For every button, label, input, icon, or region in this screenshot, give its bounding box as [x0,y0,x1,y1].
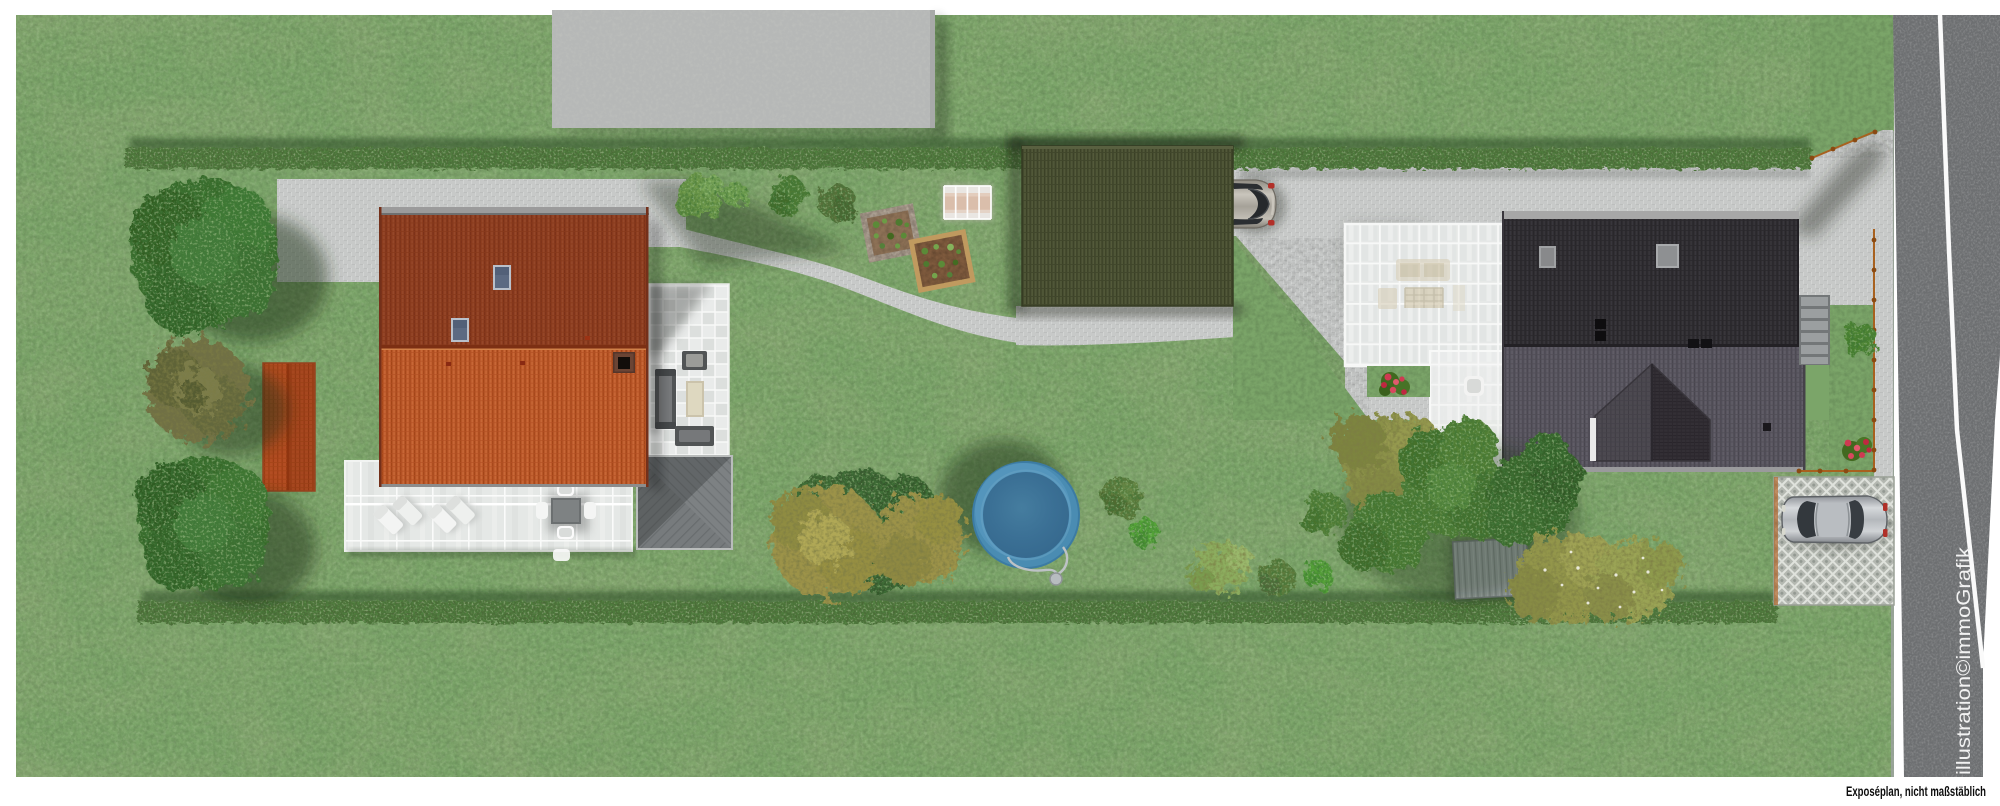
svg-text:Exposéplan, nicht maßstäblich: Exposéplan, nicht maßstäblich [1846,784,1986,799]
svg-text:illustration©immoGrafik: illustration©immoGrafik [1954,546,1975,775]
